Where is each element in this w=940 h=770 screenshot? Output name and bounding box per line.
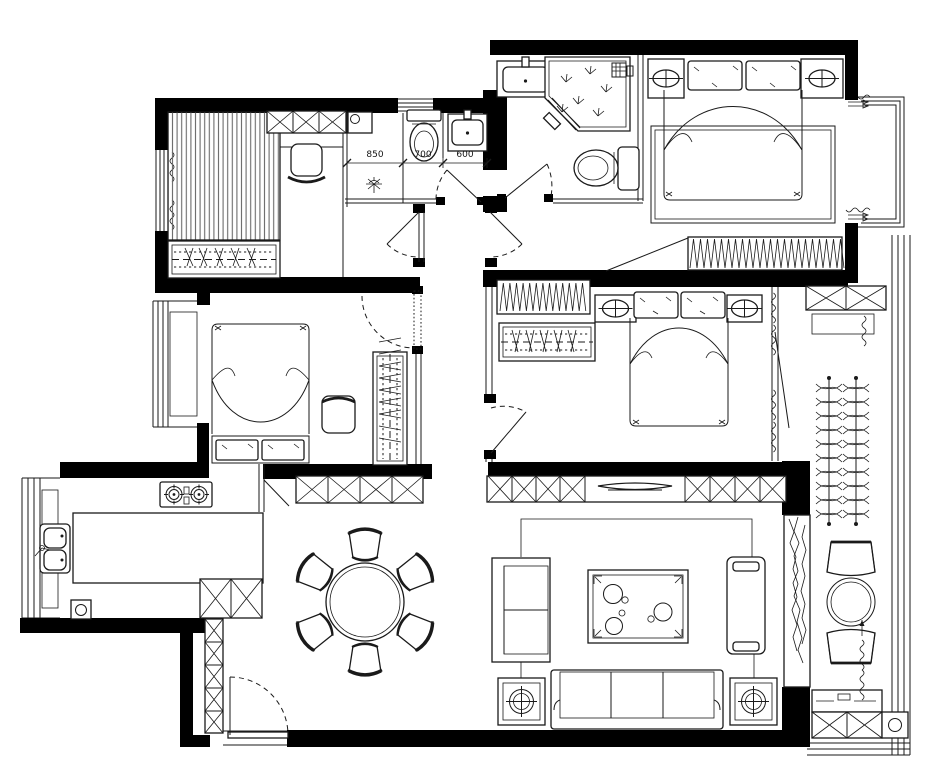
balcony-sliding-door [775,332,789,428]
study-room [168,111,346,278]
bedroom3-coil-wardrobe [497,280,590,314]
shoe-cabinet [205,619,223,733]
chaise-right [727,557,765,654]
dining-sideboard [296,476,423,503]
desk-chair [288,144,325,182]
entry [205,619,223,733]
tv-console [487,476,786,502]
corner-shower [544,57,633,131]
wall [845,40,858,100]
small-appliance [71,600,91,619]
study-xbox-cabinet [267,111,346,133]
marble-threshold [784,515,810,687]
entry-door [228,677,288,738]
balcony-round-table [827,578,875,626]
armchair-left [492,558,550,662]
bedroom2-bay-window [153,301,197,427]
wall [490,40,858,55]
dim-label-850: 850 [366,150,383,160]
side-table-right [730,678,777,725]
windows-layer [22,95,910,755]
dim-label-600: 600 [456,150,473,160]
balcony-plants-row2 [843,376,869,526]
master-bed [664,90,802,200]
wall [20,618,208,633]
master-coil-wardrobe [606,237,844,271]
master-bay-window [846,95,904,227]
coffee-table [588,570,688,643]
ensuite-toilet [574,147,639,190]
dimension-annotations: 850 700 600 [343,150,491,168]
master-rug [651,126,835,223]
bedroom3-door [491,406,526,453]
wall [60,462,207,478]
balcony-plants-row1 [816,376,842,526]
laundry-cabinet [812,690,908,738]
bedroom2-hanger-wardrobe [373,338,407,465]
floor-drain [366,177,382,193]
gas-stove [160,482,212,507]
side-table-left [498,678,545,725]
bedroom3-nightstand-left [595,295,636,322]
study-top-window [398,99,433,111]
bedroom2-stool [322,396,355,433]
three-seat-sofa [551,670,723,729]
wall [155,231,168,279]
bedroom3-hanger-rod [499,323,595,361]
master-door [490,212,522,257]
wall [287,730,785,747]
wall [488,462,785,477]
wall [180,735,210,747]
dining-area [292,476,437,676]
study-door [387,212,419,257]
ensuite-door [505,164,552,198]
master-nightstand-left [648,59,684,98]
wall [180,627,193,747]
floor-plan-canvas: 850 700 600 [0,0,940,770]
kitchen-xbox-cabinet [200,579,262,618]
balcony-chair-bottom [827,630,875,664]
living-room [487,476,786,729]
balcony-window [807,235,910,755]
wall [155,98,168,150]
kitchen [35,482,263,619]
study-hanger-wardrobe [168,241,280,278]
kitchen-island [73,513,263,583]
wall [197,279,210,305]
washing-machine [348,112,372,133]
floor-plan-svg: 850 700 600 [0,0,940,770]
master-nightstand-right [801,59,843,98]
bedroom3 [497,280,762,426]
master-pillows [688,61,800,90]
master-suite [497,57,844,271]
bedroom2-bed [212,324,309,463]
wall [155,277,420,293]
double-sink [35,524,70,573]
bedroom2 [212,324,407,465]
basin [448,110,487,151]
tatami-platform [168,112,280,240]
dim-label-700: 700 [414,150,431,160]
bedroom3-bed [630,318,728,426]
wall [782,687,810,747]
shared-bathroom: 850 700 600 [343,110,491,193]
balcony-chair-top [827,542,875,576]
bedroom3-pillows [634,292,725,318]
round-dining-table [292,528,437,676]
bedroom3-nightstand-right [727,295,762,322]
balcony-top-cabinet [806,286,886,346]
